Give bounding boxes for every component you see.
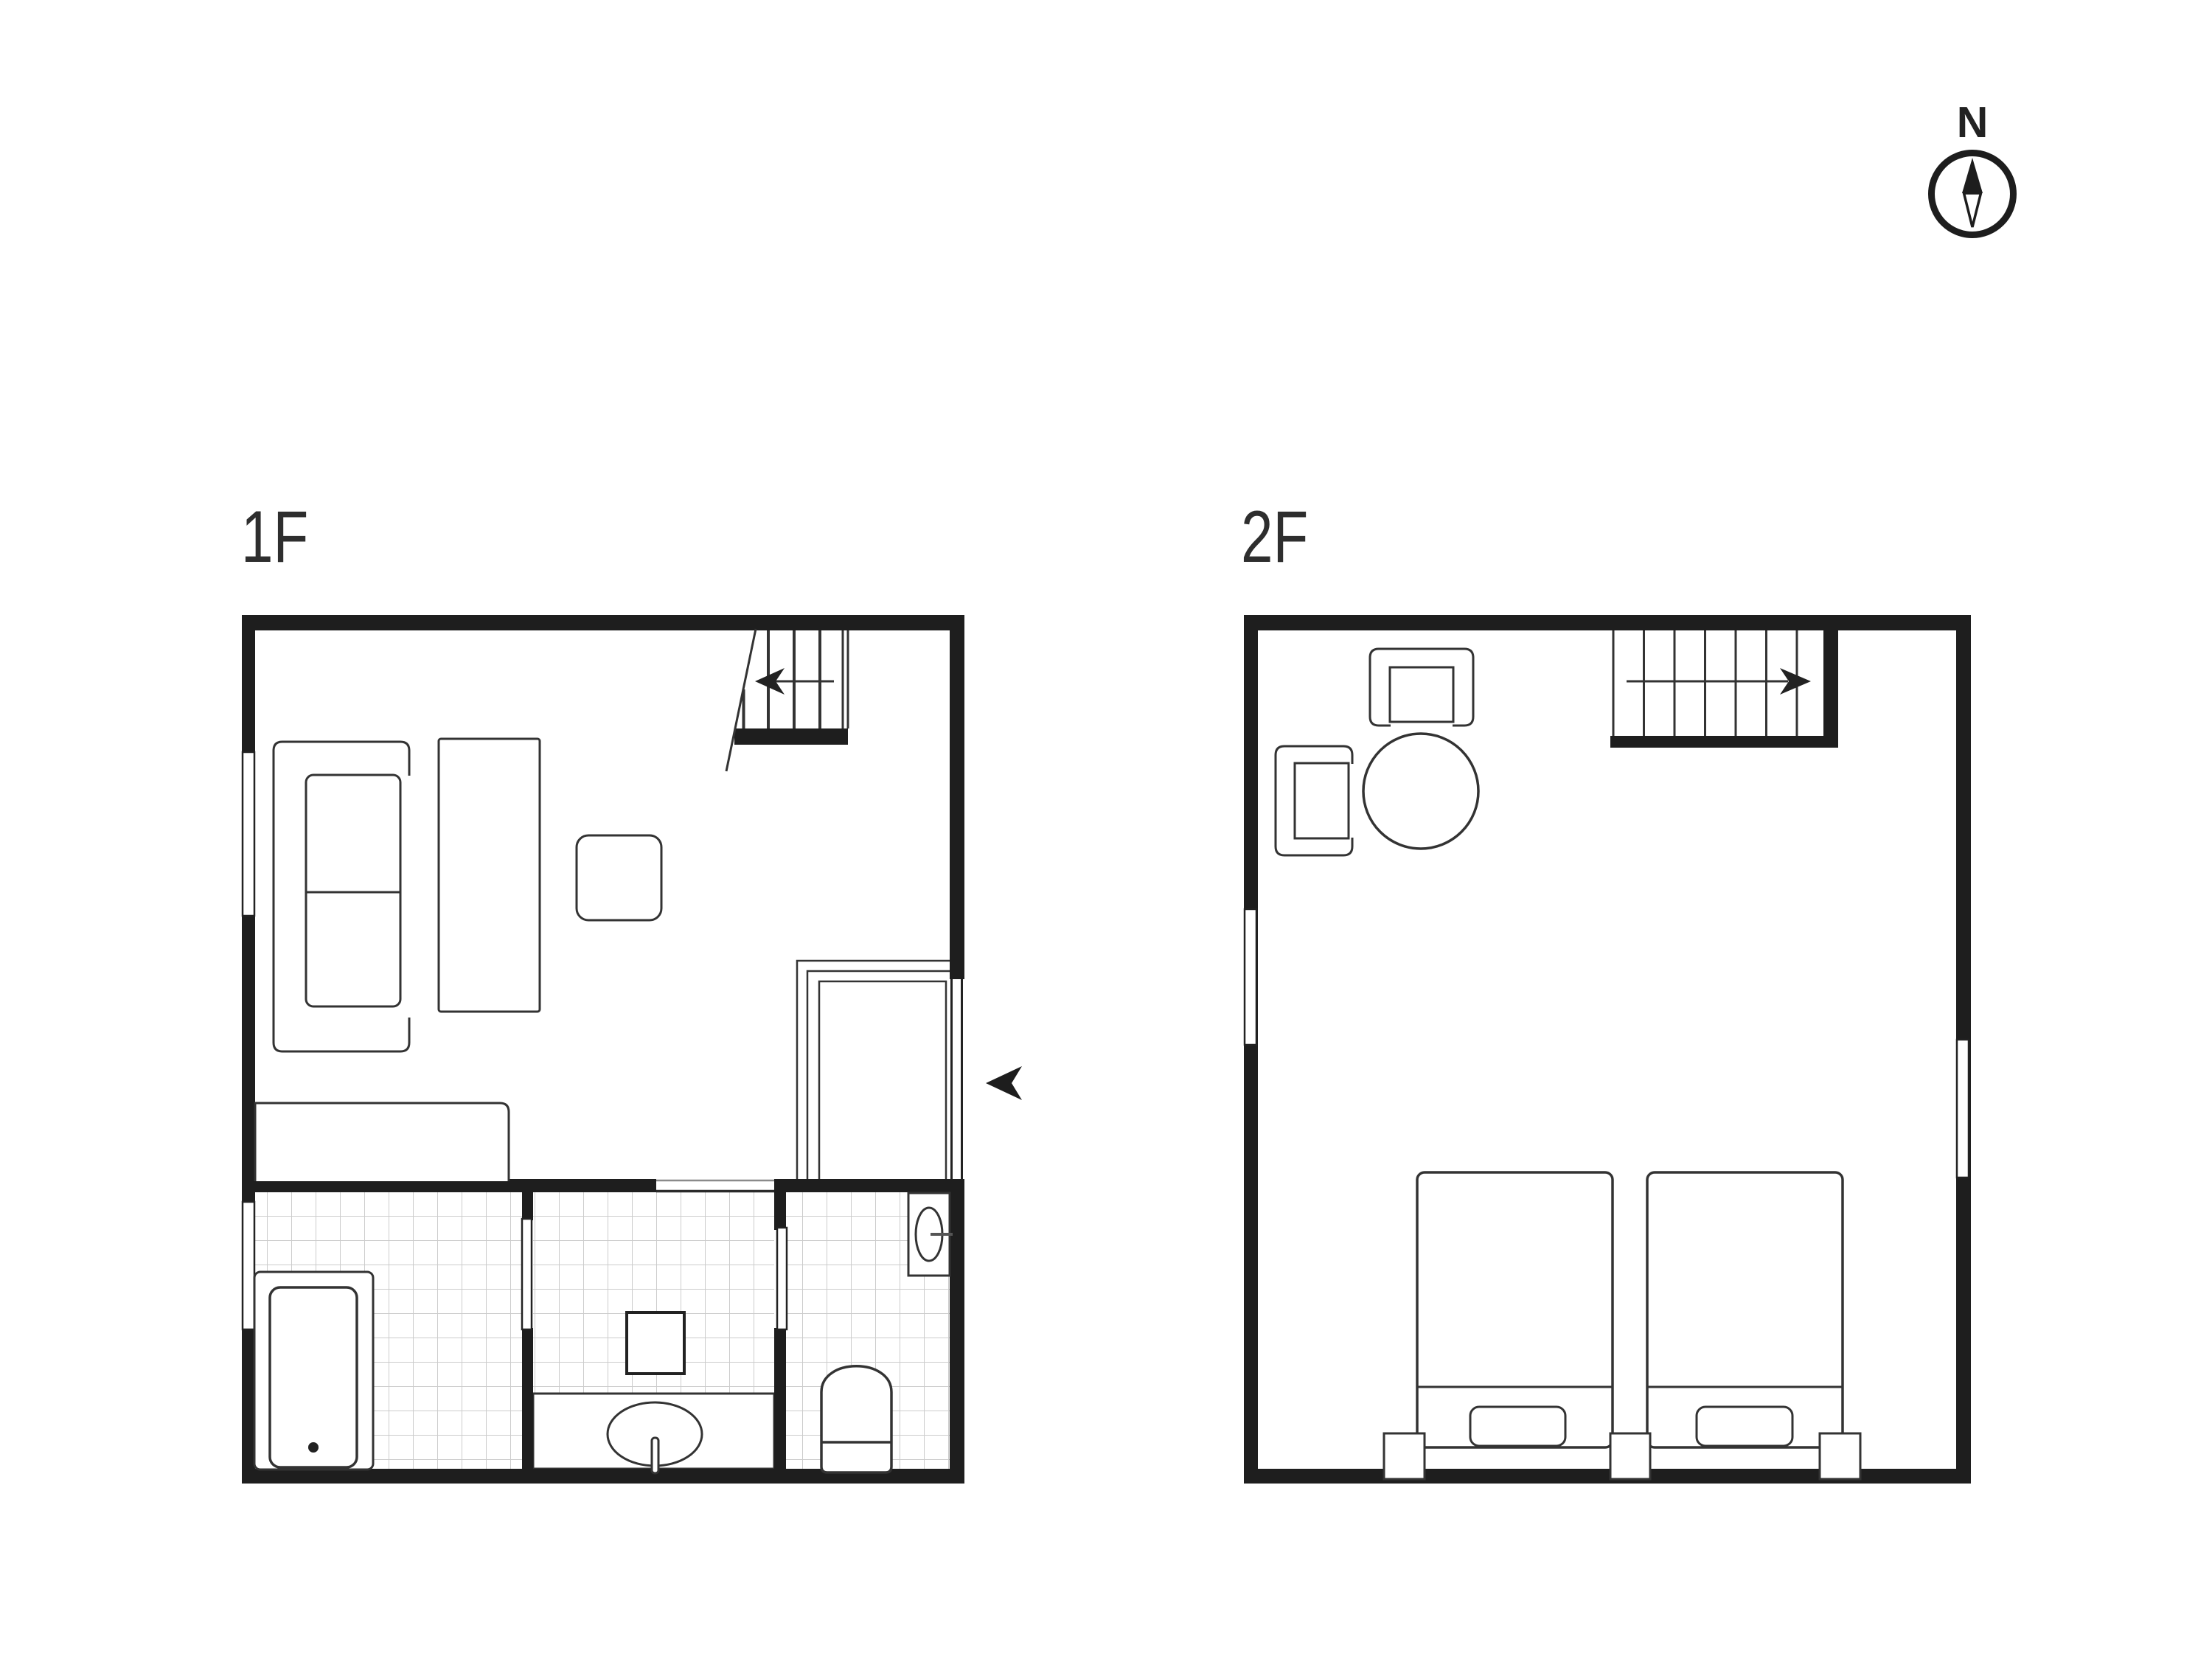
svg-text:1F: 1F	[241, 495, 308, 577]
svg-text:2F: 2F	[1241, 495, 1308, 577]
svg-text:N: N	[1957, 98, 1989, 147]
